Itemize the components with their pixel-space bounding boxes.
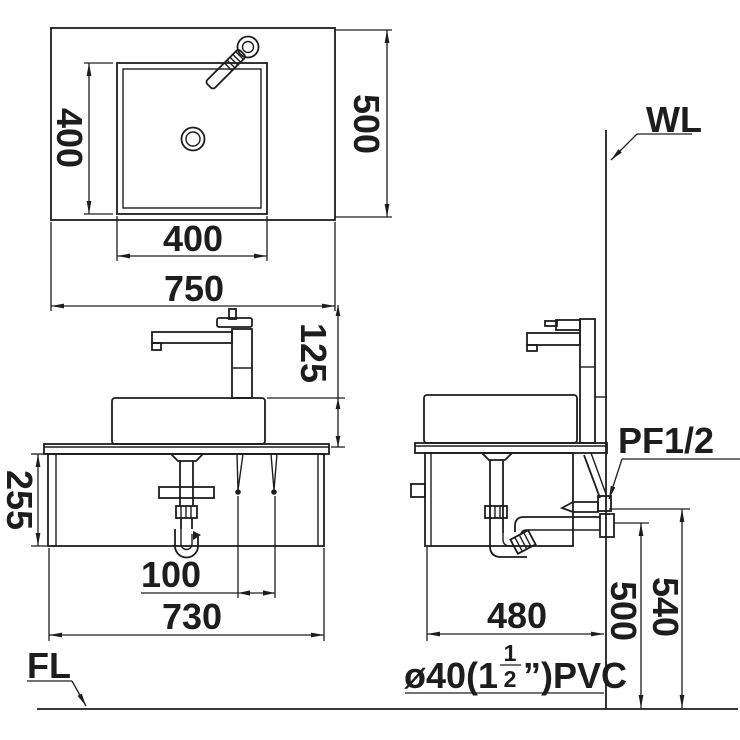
- side-faucet: [527, 319, 595, 443]
- side-dim-cabinet-depth: 480: [427, 547, 604, 641]
- wall-line-callout: WL: [611, 99, 702, 160]
- plan-dim-sink-depth: 400: [49, 63, 113, 214]
- front-faucet-spout: [152, 332, 232, 343]
- pipe-size-suffix: ”)PVC: [523, 655, 627, 696]
- side-wall-escutcheon: [600, 514, 614, 537]
- side-faucet-lever: [556, 320, 580, 330]
- plan-dim-counter-width-label: 750: [164, 268, 224, 309]
- front-dim-basin-height: 125: [267, 305, 345, 447]
- side-cabinet: [425, 453, 573, 546]
- supply-label: PF1/2: [618, 420, 714, 461]
- plan-sink-inner: [123, 69, 261, 208]
- floor: FL: [27, 645, 738, 709]
- plan-dim-sink-depth-label: 400: [49, 108, 90, 168]
- front-faucet-spout-tip: [152, 343, 161, 350]
- side-cabinet-tab: [411, 484, 425, 497]
- side-drain-trap: [482, 453, 614, 557]
- pipe-size-frac-num: 1: [504, 640, 517, 666]
- side-faucet-spout: [527, 333, 580, 345]
- pipe-size-prefix: ø40(1: [404, 655, 498, 696]
- front-trap-outlet: [193, 531, 201, 540]
- plan-dim-sink-width: 400: [117, 216, 267, 261]
- front-cabinet: [48, 454, 324, 546]
- pipe-size-frac-den: 2: [504, 666, 517, 692]
- front-trap-nut: [176, 506, 197, 518]
- front-trap-plate: [159, 487, 214, 498]
- front-dim-basin-height-label: 125: [293, 323, 334, 383]
- plan-countertop: [51, 28, 335, 220]
- side-supply: [562, 453, 611, 512]
- supply-callout: PF1/2: [609, 420, 740, 499]
- floor-line-callout: FL: [27, 645, 86, 706]
- front-dim-cabinet-height-label: 255: [0, 470, 40, 530]
- side-dim-drain-height-label: 500: [603, 581, 644, 641]
- front-faucet: [152, 309, 252, 398]
- front-basin: [112, 398, 265, 444]
- side-basin: [424, 395, 577, 443]
- floor-line-label: FL: [27, 645, 71, 686]
- front-view: 125 255 100 730: [0, 305, 345, 641]
- front-brackets: [235, 454, 277, 495]
- side-countertop: [415, 443, 607, 453]
- plan-dim-counter-depth: 500: [335, 30, 392, 217]
- plan-drain: [182, 128, 205, 151]
- side-dim-cabinet-depth-label: 480: [487, 595, 547, 636]
- side-trap-elbow-outer: [490, 533, 527, 557]
- front-dim-cabinet-width-label: 730: [162, 596, 222, 637]
- front-drain-flange: [171, 454, 203, 461]
- technical-drawing-canvas: 400 500 400 750: [0, 0, 740, 740]
- faucet-knob-inner: [243, 42, 254, 53]
- side-trap-adapter: [510, 530, 535, 554]
- front-drain-trap: [159, 454, 214, 558]
- front-countertop: [44, 444, 329, 454]
- plan-sink-outer: [117, 63, 267, 214]
- plan-dim-counter-depth-label: 500: [346, 94, 387, 154]
- faucet-knob-outer: [238, 37, 259, 58]
- side-waste-arm-bottom: [521, 530, 600, 535]
- plan-view: 400 500 400 750: [49, 28, 392, 311]
- side-valve-handle: [562, 502, 598, 512]
- side-dim-supply-height-label: 540: [645, 577, 686, 637]
- front-dim-bracket-spacing-label: 100: [141, 554, 201, 595]
- drawing-svg: 400 500 400 750: [0, 0, 740, 740]
- side-faucet-spout-tip: [527, 345, 537, 351]
- side-drain-flange: [482, 453, 512, 460]
- side-view: 480 500 540 WL PF1/2 ø40(1 1: [404, 99, 740, 709]
- pipe-size-callout: ø40(1 1 2 ”)PVC: [404, 640, 627, 696]
- plan-dim-sink-width-label: 400: [163, 218, 223, 259]
- front-dim-bracket-spacing: 100: [141, 496, 275, 598]
